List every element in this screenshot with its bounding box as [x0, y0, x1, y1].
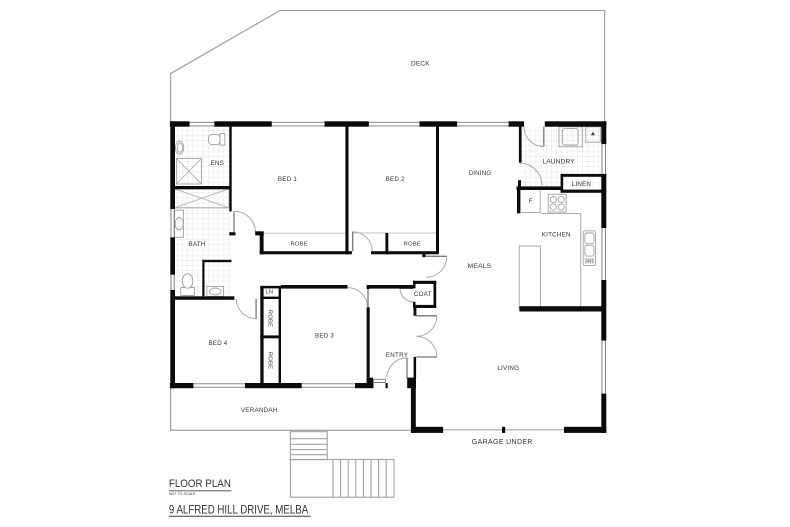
- svg-text:FLOOR PLAN: FLOOR PLAN: [169, 478, 231, 490]
- svg-text:BED 4: BED 4: [209, 340, 228, 347]
- svg-text:9 ALFRED HILL DRIVE, MELBA: 9 ALFRED HILL DRIVE, MELBA: [169, 503, 309, 517]
- svg-text:ROBE: ROBE: [404, 241, 422, 247]
- svg-text:GARAGE UNDER: GARAGE UNDER: [472, 439, 533, 446]
- svg-text:ROBE: ROBE: [267, 310, 273, 328]
- svg-text:LAUNDRY: LAUNDRY: [543, 159, 576, 166]
- svg-text:VERANDAH: VERANDAH: [241, 407, 278, 414]
- svg-text:LIVING: LIVING: [497, 365, 519, 372]
- svg-text:NOT TO SCALE: NOT TO SCALE: [169, 491, 196, 496]
- svg-text:BATH: BATH: [188, 241, 205, 248]
- svg-text:KITCHEN: KITCHEN: [542, 232, 571, 239]
- svg-text:LN: LN: [266, 290, 274, 296]
- svg-text:COAT: COAT: [414, 291, 432, 298]
- svg-text:MEALS: MEALS: [468, 263, 492, 270]
- svg-text:DECK: DECK: [411, 61, 430, 68]
- svg-text:ROBE: ROBE: [267, 352, 273, 370]
- svg-text:BED 1: BED 1: [278, 176, 297, 183]
- svg-text:ENS: ENS: [211, 160, 225, 167]
- svg-text:DINING: DINING: [469, 170, 492, 177]
- svg-text:F: F: [529, 198, 533, 205]
- svg-text:LINEN: LINEN: [572, 181, 591, 188]
- svg-text:ROBE: ROBE: [290, 241, 308, 247]
- svg-text:ENTRY: ENTRY: [386, 352, 409, 359]
- svg-text:BED 3: BED 3: [315, 333, 334, 340]
- svg-text:BED 2: BED 2: [386, 176, 405, 183]
